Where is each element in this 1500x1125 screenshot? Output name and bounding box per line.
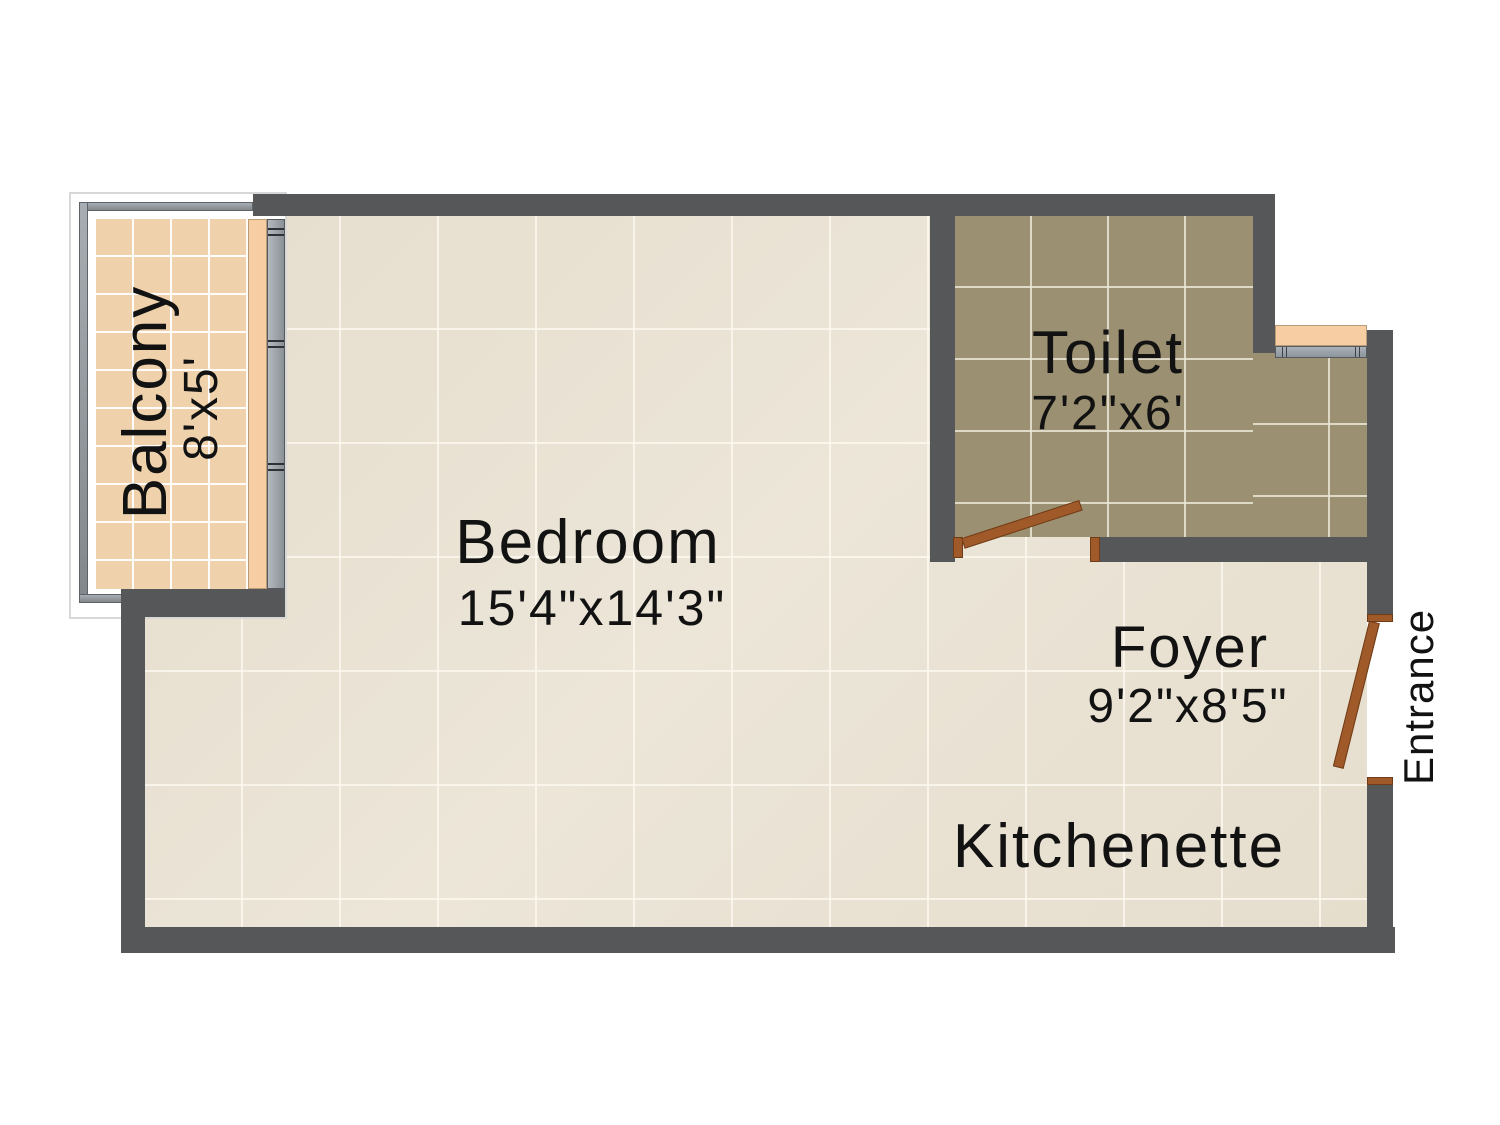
wall-right-lower [1367, 777, 1393, 953]
wall-toilet-west [930, 216, 955, 562]
entrance-label: Entrance [1398, 609, 1440, 785]
wall-right-upper [1367, 330, 1393, 622]
bedroom-dims: 15'4"x14'3" [458, 583, 726, 633]
wall-toilet-south [1090, 537, 1367, 562]
balcony-railing-left [79, 202, 88, 603]
wall-under-balcony [121, 589, 285, 617]
balcony-sliding-door [267, 219, 285, 589]
foyer-label: Foyer [1111, 619, 1269, 677]
foyer-dims: 9'2"x8'5" [1087, 683, 1288, 731]
wall-west [121, 589, 145, 953]
balcony-dims: 8'x5' [178, 355, 226, 461]
kitchenette-label: Kitchenette [953, 816, 1285, 878]
wall-toilet-east [1253, 216, 1275, 353]
toilet-label: Toilet [1032, 323, 1184, 383]
bedroom-label: Bedroom [455, 512, 721, 574]
wall-top [253, 194, 1275, 216]
balcony-sill [248, 219, 267, 589]
balcony-label: Balcony [115, 285, 177, 520]
toilet-floor-extension [1253, 353, 1367, 537]
wall-bottom [121, 927, 1395, 953]
toilet-window-sill [1275, 325, 1367, 346]
exterior-notch [1275, 180, 1400, 325]
toilet-window [1275, 346, 1367, 358]
toilet-dims: 7'2"x6' [1031, 390, 1184, 438]
toilet-door-jamb-right [1090, 537, 1100, 562]
balcony-railing-top [79, 202, 253, 211]
floor-plan: Balcony 8'x5' Bedroom 15'4"x14'3" Toilet… [0, 0, 1500, 1125]
entrance-door-jamb-bottom [1367, 777, 1393, 785]
